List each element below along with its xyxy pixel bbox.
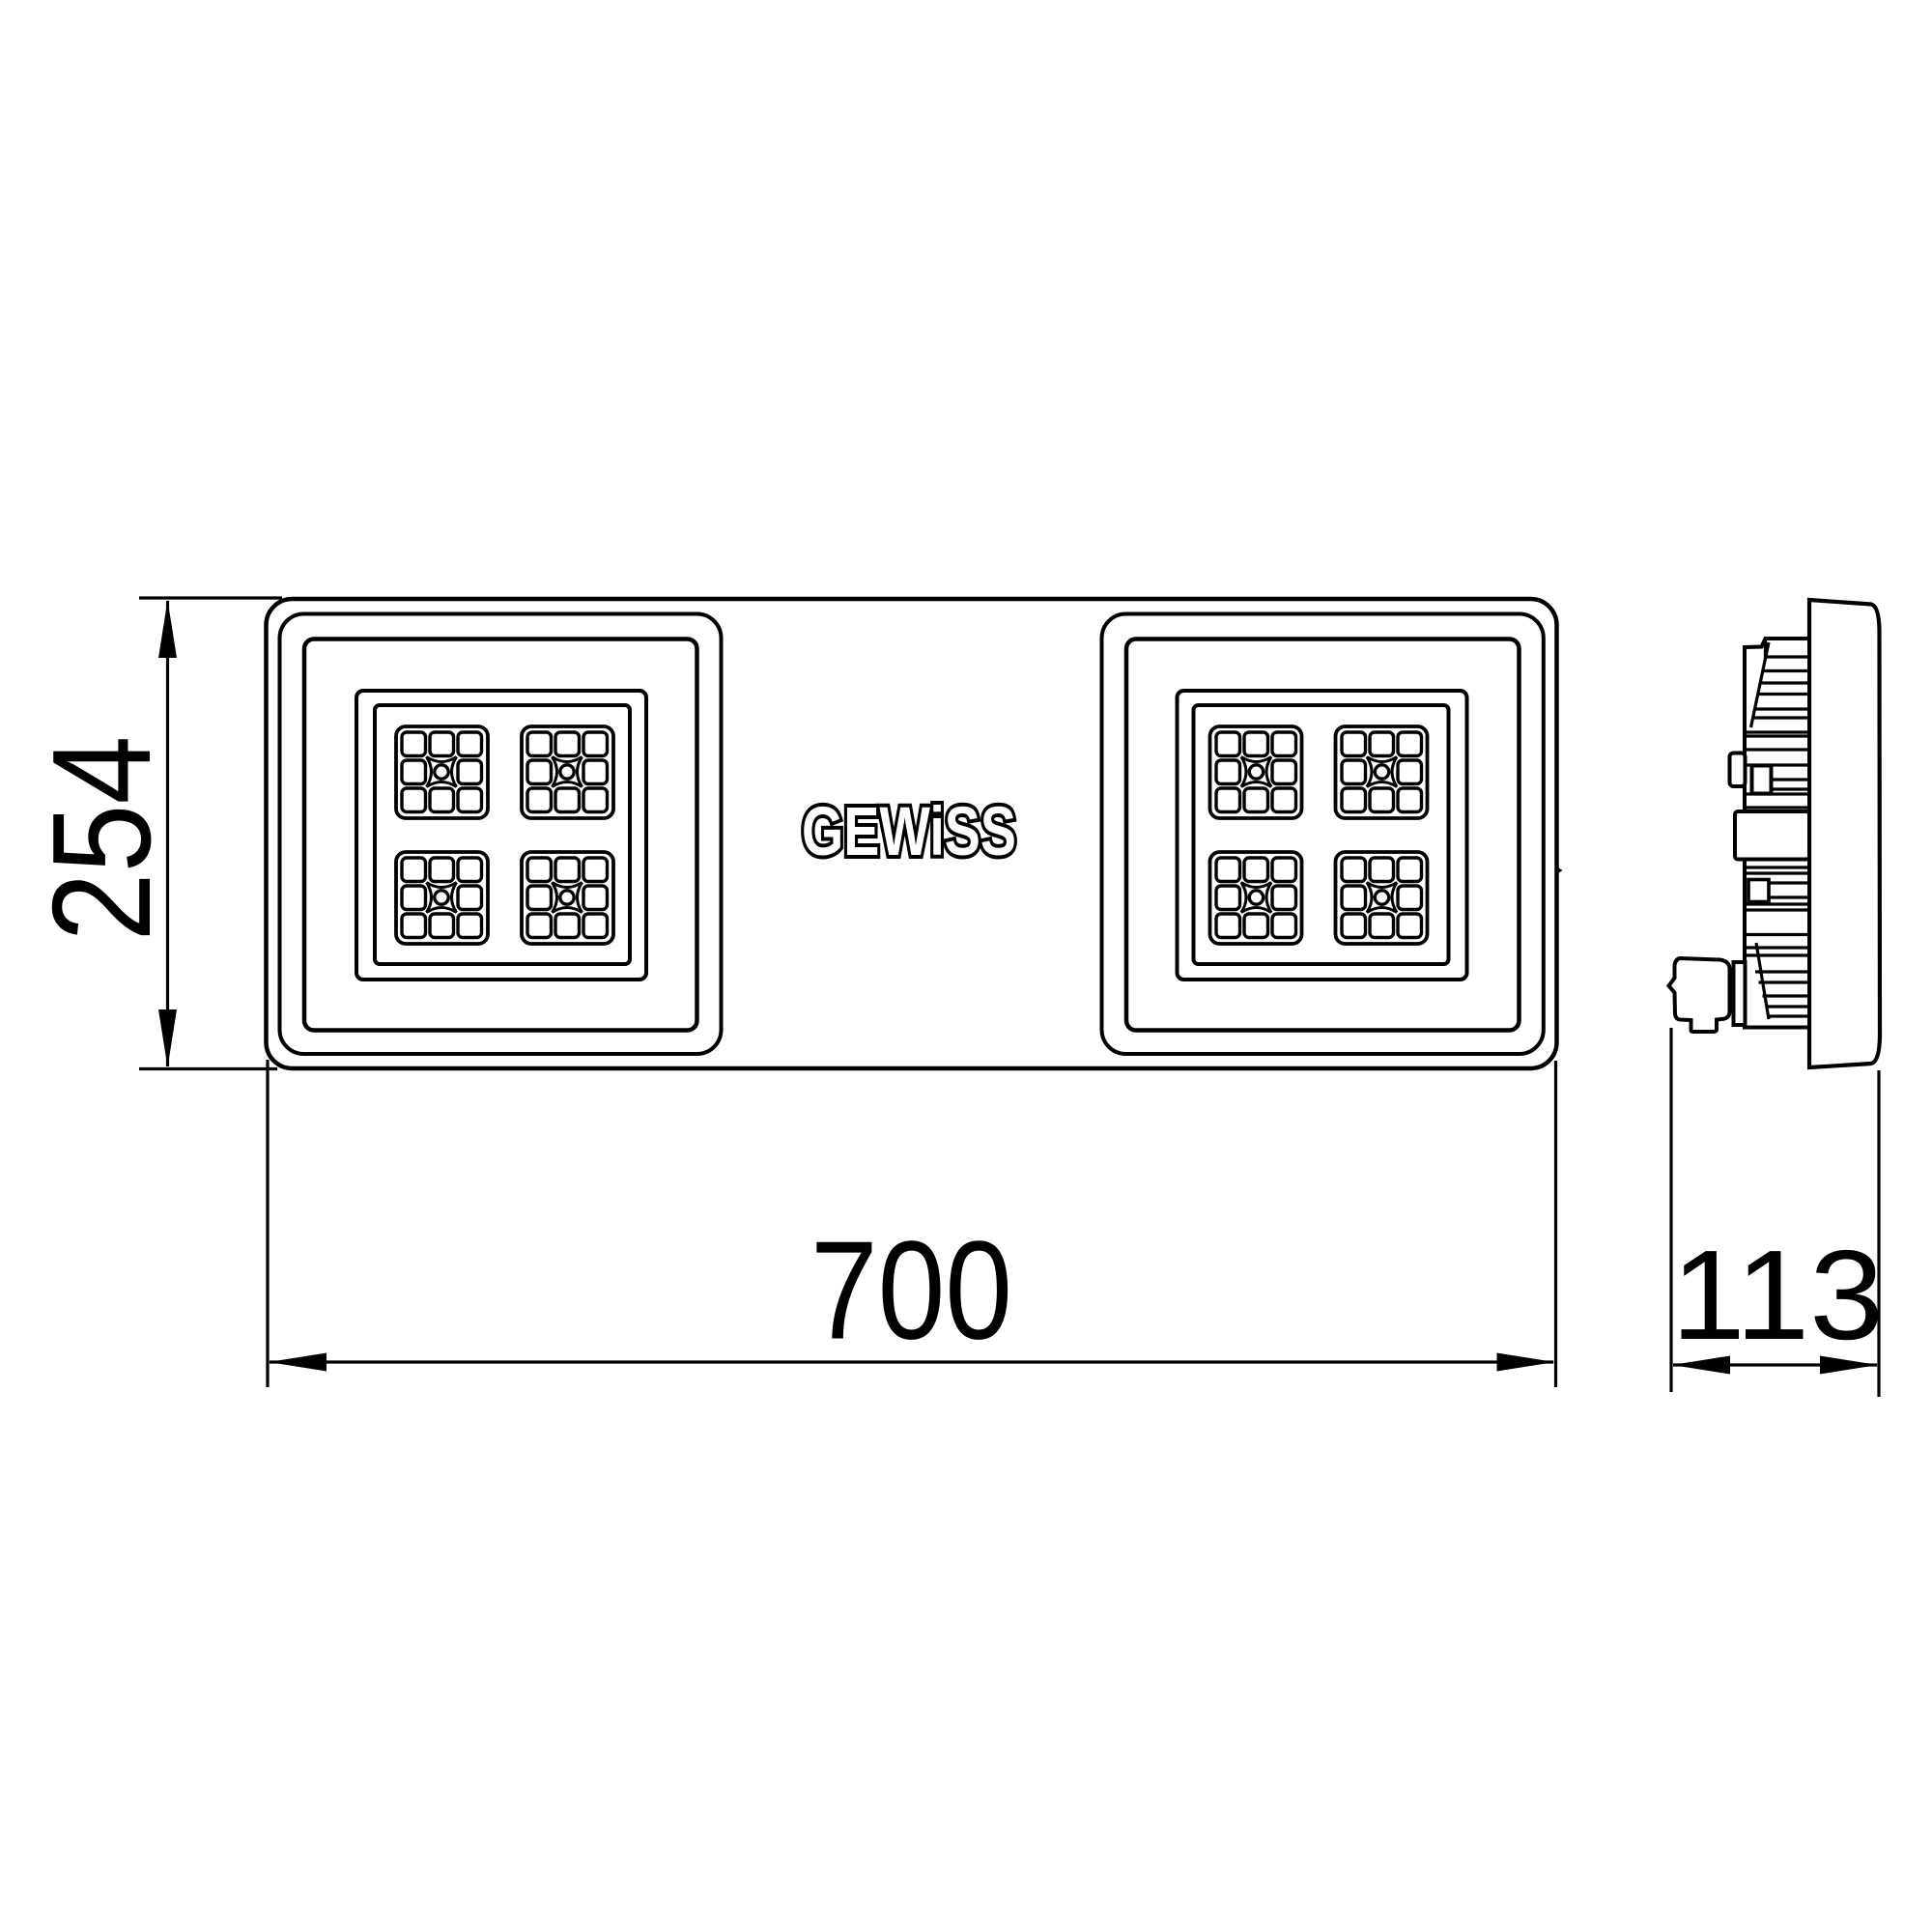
svg-text:113: 113 <box>1671 1224 1884 1366</box>
svg-text:700: 700 <box>810 1212 1012 1369</box>
svg-text:254: 254 <box>23 736 180 942</box>
svg-text:GEWiSS: GEWiSS <box>802 794 1016 870</box>
